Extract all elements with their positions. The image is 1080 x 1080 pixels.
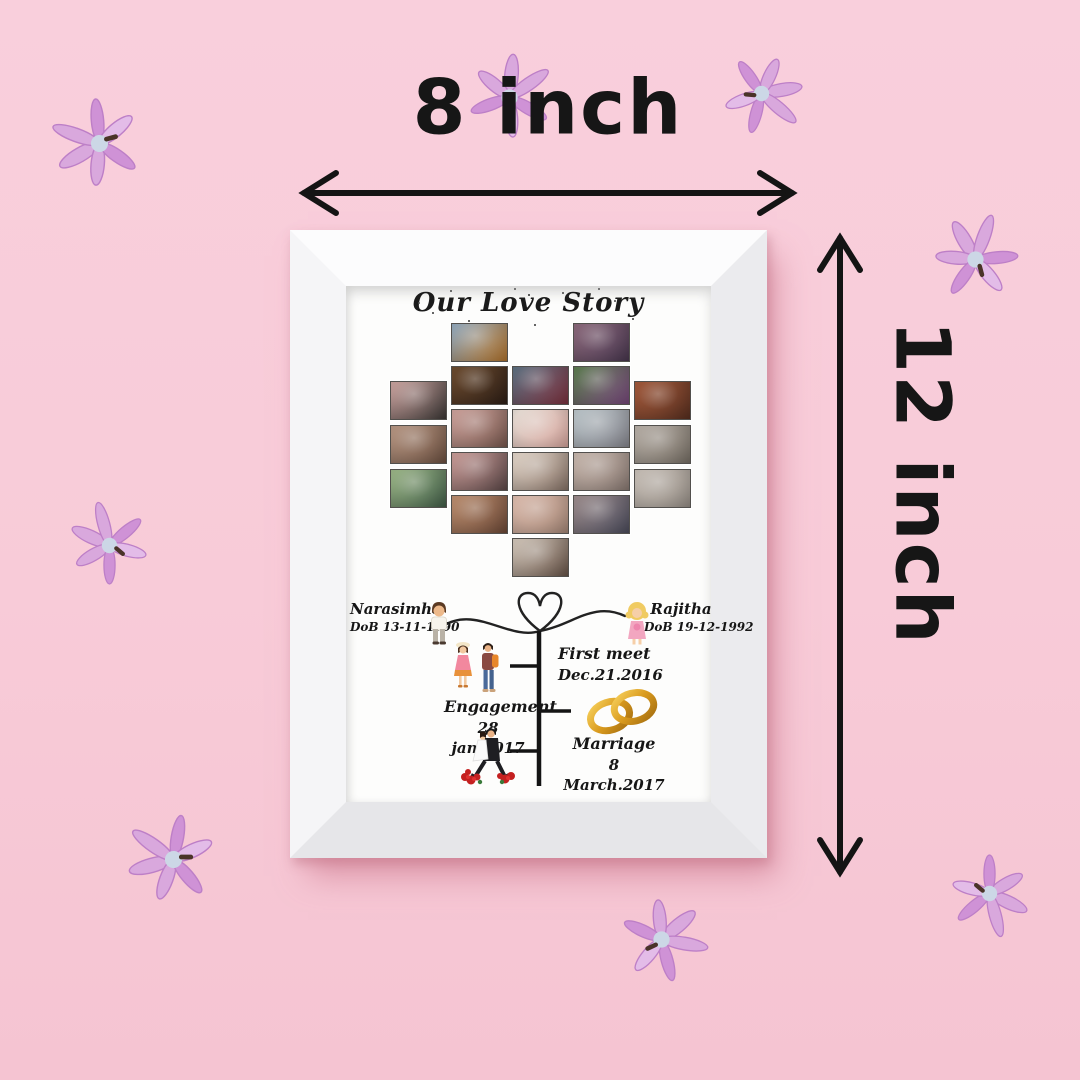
- width-dimension-label: 8 inch: [413, 63, 684, 152]
- flower-decoration: [933, 837, 1047, 951]
- event-first-meet: First meet Dec.21.2016: [558, 643, 663, 685]
- height-dimension-label: 12 inch: [879, 320, 968, 646]
- heart-photo-collage: [390, 323, 691, 577]
- cartoon-man-icon: [428, 601, 450, 646]
- flower-decoration: [115, 801, 231, 917]
- collage-photo: [573, 323, 630, 362]
- event-label: Engagement: [444, 696, 532, 718]
- frame-paper: Our Love Story Narasimha DoB 13-11-1990: [346, 286, 711, 802]
- collage-photo: [512, 452, 569, 491]
- product-photo-stage: 8 inch 12 inch Our Love Story: [0, 0, 1080, 1080]
- cartoon-wedding-couple-icon: [455, 727, 519, 787]
- bride-name: Rajitha: [644, 599, 718, 619]
- event-label: First meet: [558, 643, 663, 665]
- collage-photo: [451, 409, 508, 448]
- event-label: Marriage: [558, 733, 670, 755]
- collage-photo: [512, 409, 569, 448]
- flower-decoration: [914, 198, 1037, 321]
- title-speckles: [528, 294, 530, 296]
- flower-decoration: [35, 79, 165, 209]
- collage-photo: [512, 538, 569, 577]
- flower-decoration: [53, 489, 167, 603]
- collage-photo: [512, 366, 569, 405]
- collage-photo: [451, 452, 508, 491]
- collage-photo: [451, 323, 508, 362]
- groom-name: Narasimha: [350, 599, 434, 619]
- heart-doodle: [443, 593, 625, 633]
- collage-photo: [390, 425, 447, 464]
- collage-photo: [390, 469, 447, 508]
- cartoon-dating-couple-icon: [450, 640, 508, 696]
- photo-frame: Our Love Story Narasimha DoB 13-11-1990: [290, 230, 767, 858]
- bride-info: Rajitha DoB 19-12-1992: [644, 599, 718, 635]
- collage-photo: [451, 366, 508, 405]
- collage-photo: [634, 381, 691, 420]
- collage-photo: [573, 452, 630, 491]
- event-date: 8 March.2017: [558, 755, 670, 796]
- cartoon-woman-icon: [622, 601, 652, 646]
- groom-info: Narasimha DoB 13-11-1990: [350, 599, 434, 635]
- collage-photo: [573, 495, 630, 534]
- flower-decoration: [712, 44, 811, 143]
- collage-photo: [573, 366, 630, 405]
- event-marriage: Marriage 8 March.2017: [558, 733, 670, 795]
- gold-wedding-rings-icon: [578, 686, 664, 738]
- event-date: Dec.21.2016: [558, 665, 663, 685]
- groom-dob: DoB 13-11-1990: [350, 619, 434, 635]
- width-dimension-arrow: [296, 168, 800, 218]
- flower-decoration: [598, 876, 725, 1003]
- collage-photo: [573, 409, 630, 448]
- collage-photo: [512, 495, 569, 534]
- collage-title: Our Love Story: [346, 288, 711, 318]
- collage-photo: [634, 469, 691, 508]
- bride-dob: DoB 19-12-1992: [644, 619, 718, 635]
- height-dimension-arrow: [815, 230, 865, 880]
- collage-photo: [390, 381, 447, 420]
- collage-photo: [634, 425, 691, 464]
- collage-photo: [451, 495, 508, 534]
